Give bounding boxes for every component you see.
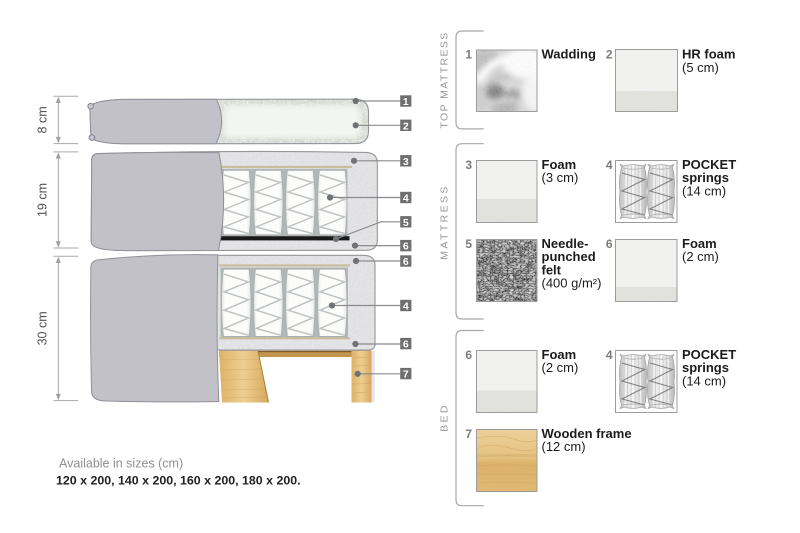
svg-text:3: 3 bbox=[465, 158, 472, 172]
svg-text:(12 cm): (12 cm) bbox=[542, 439, 586, 454]
svg-text:5: 5 bbox=[465, 237, 472, 251]
svg-text:6: 6 bbox=[465, 348, 472, 362]
svg-text:6: 6 bbox=[403, 339, 409, 351]
svg-text:7: 7 bbox=[465, 427, 472, 441]
svg-text:6: 6 bbox=[403, 256, 409, 268]
svg-text:(2 cm): (2 cm) bbox=[682, 249, 719, 264]
svg-text:TOP MATTRESS: TOP MATTRESS bbox=[439, 31, 451, 128]
svg-text:120 x 200, 140 x 200, 160 x 20: 120 x 200, 140 x 200, 160 x 200, 180 x 2… bbox=[56, 474, 301, 488]
svg-text:(14 cm): (14 cm) bbox=[682, 373, 726, 388]
svg-text:1: 1 bbox=[403, 96, 409, 108]
svg-text:4: 4 bbox=[606, 348, 613, 362]
svg-text:4: 4 bbox=[606, 158, 613, 172]
svg-text:4: 4 bbox=[403, 193, 409, 205]
svg-text:4: 4 bbox=[403, 301, 409, 313]
svg-text:1: 1 bbox=[465, 47, 472, 61]
svg-text:8 cm: 8 cm bbox=[36, 106, 50, 133]
svg-text:2: 2 bbox=[403, 120, 409, 132]
svg-text:30 cm: 30 cm bbox=[36, 311, 50, 345]
svg-text:(5 cm): (5 cm) bbox=[682, 60, 719, 75]
svg-text:(14 cm): (14 cm) bbox=[682, 183, 726, 198]
svg-text:7: 7 bbox=[403, 369, 409, 381]
svg-text:3: 3 bbox=[403, 156, 409, 168]
svg-text:(400 g/m²): (400 g/m²) bbox=[542, 276, 602, 291]
svg-text:(3 cm): (3 cm) bbox=[542, 170, 579, 185]
svg-text:5: 5 bbox=[403, 217, 409, 229]
svg-text:Wadding: Wadding bbox=[542, 47, 596, 62]
svg-text:Available in sizes (cm): Available in sizes (cm) bbox=[59, 457, 183, 471]
svg-text:(2 cm): (2 cm) bbox=[542, 360, 579, 375]
svg-text:6: 6 bbox=[403, 241, 409, 253]
svg-text:19 cm: 19 cm bbox=[36, 183, 50, 217]
svg-text:2: 2 bbox=[606, 47, 613, 61]
svg-text:MATTRESS: MATTRESS bbox=[439, 184, 451, 260]
svg-text:BED: BED bbox=[439, 403, 451, 432]
svg-text:6: 6 bbox=[606, 237, 613, 251]
